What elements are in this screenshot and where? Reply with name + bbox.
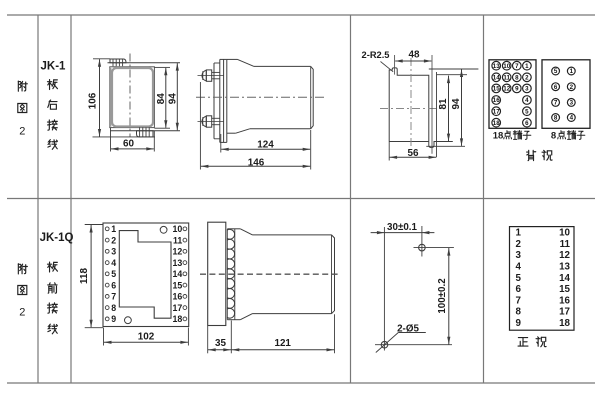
svg-text:8: 8 [554,115,558,122]
svg-text:16: 16 [559,295,570,306]
svg-text:7: 7 [554,100,558,107]
svg-text:3: 3 [525,86,529,93]
svg-text:11: 11 [503,75,510,82]
svg-text:17: 17 [559,307,570,318]
svg-text:2: 2 [516,239,522,250]
svg-text:118: 118 [79,268,90,284]
svg-text:5: 5 [554,68,558,75]
svg-text:7: 7 [515,63,519,70]
svg-text:100±0.2: 100±0.2 [437,278,448,314]
svg-text:7: 7 [111,292,116,302]
svg-text:17: 17 [173,303,183,313]
svg-text:3: 3 [111,247,116,257]
svg-text:2: 2 [19,307,25,319]
svg-text:94: 94 [168,93,179,104]
svg-text:9: 9 [515,86,519,93]
svg-text:6: 6 [554,84,558,91]
svg-text:JK-1Q: JK-1Q [40,232,74,244]
svg-text:35: 35 [215,338,226,349]
svg-text:4: 4 [516,262,522,273]
svg-text:7: 7 [516,295,522,306]
svg-text:16: 16 [493,97,500,104]
svg-text:4: 4 [570,115,574,122]
svg-text:15: 15 [493,86,500,93]
svg-text:14: 14 [559,273,570,284]
svg-text:5: 5 [516,273,522,284]
svg-text:2-Ø5: 2-Ø5 [397,324,419,335]
svg-text:30±0.1: 30±0.1 [387,222,417,233]
svg-text:8: 8 [111,303,116,313]
svg-text:2: 2 [570,84,574,91]
svg-text:5: 5 [111,269,116,279]
svg-text:3: 3 [516,250,522,261]
svg-text:8: 8 [551,131,556,142]
svg-text:56: 56 [408,148,419,159]
svg-text:10: 10 [503,63,510,70]
svg-text:3: 3 [570,100,574,107]
svg-text:16: 16 [173,292,183,302]
svg-text:6: 6 [516,284,522,295]
svg-text:1: 1 [525,63,529,70]
svg-text:84: 84 [156,93,167,104]
svg-text:14: 14 [493,75,500,82]
svg-text:9: 9 [111,314,116,324]
svg-text:146: 146 [248,158,265,169]
svg-text:11: 11 [560,239,571,250]
svg-text:121: 121 [274,338,291,349]
svg-text:1: 1 [111,224,116,234]
svg-text:2-R2.5: 2-R2.5 [362,50,390,60]
svg-text:9: 9 [516,318,522,329]
svg-text:60: 60 [123,139,134,150]
svg-text:10: 10 [559,228,570,239]
svg-text:124: 124 [257,139,274,150]
svg-text:18: 18 [493,120,500,127]
svg-text:106: 106 [88,92,99,109]
svg-text:1: 1 [570,68,574,75]
svg-text:6: 6 [525,120,529,127]
svg-text:12: 12 [559,250,570,261]
svg-text:11: 11 [173,235,182,245]
svg-text:8: 8 [516,307,522,318]
svg-text:1: 1 [516,228,522,239]
svg-text:10: 10 [173,224,183,234]
svg-text:12: 12 [503,86,510,93]
svg-text:18: 18 [173,314,183,324]
svg-text:13: 13 [559,262,570,273]
svg-text:13: 13 [173,258,183,268]
svg-text:2: 2 [525,75,529,82]
svg-text:JK-1: JK-1 [41,61,67,73]
svg-text:15: 15 [173,280,183,290]
svg-text:18: 18 [493,131,504,142]
svg-text:2: 2 [111,235,116,245]
svg-text:8: 8 [515,75,519,82]
svg-text:4: 4 [111,258,116,268]
svg-text:12: 12 [173,247,183,257]
svg-text:5: 5 [525,108,529,115]
svg-text:17: 17 [493,108,500,115]
svg-text:18: 18 [559,318,570,329]
svg-text:102: 102 [138,332,155,343]
svg-text:4: 4 [525,97,529,104]
svg-text:81: 81 [438,98,449,109]
svg-text:2: 2 [19,126,25,138]
svg-text:13: 13 [493,63,500,70]
svg-text:94: 94 [451,98,462,109]
svg-text:15: 15 [559,284,570,295]
svg-text:14: 14 [173,269,183,279]
svg-text:48: 48 [409,50,420,61]
svg-text:6: 6 [111,280,116,290]
